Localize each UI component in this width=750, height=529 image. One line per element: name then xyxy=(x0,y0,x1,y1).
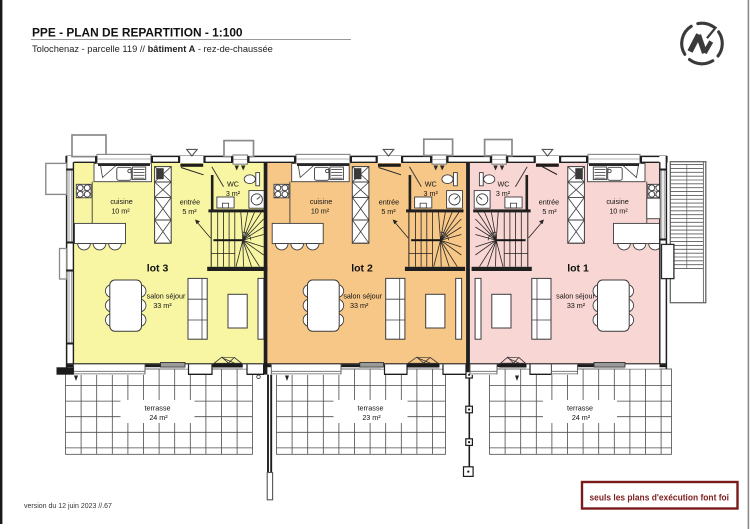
svg-text:10 m²: 10 m² xyxy=(609,207,628,216)
svg-text:24 m²: 24 m² xyxy=(149,413,168,422)
svg-text:3 m²: 3 m² xyxy=(496,189,511,198)
svg-text:version du 12 juin 2023 //.67: version du 12 juin 2023 //.67 xyxy=(24,503,112,510)
svg-text:lot 1: lot 1 xyxy=(567,263,589,275)
svg-text:terrasse: terrasse xyxy=(358,404,384,413)
svg-text:seuls les plans d'exécution fo: seuls les plans d'exécution font foi xyxy=(590,493,730,503)
svg-text:WC: WC xyxy=(425,180,437,189)
svg-text:10 m²: 10 m² xyxy=(111,207,130,216)
svg-text:cuisine: cuisine xyxy=(310,197,332,206)
svg-text:10 m²: 10 m² xyxy=(311,207,330,216)
svg-text:entrée: entrée xyxy=(379,198,399,207)
svg-text:3 m²: 3 m² xyxy=(226,189,241,198)
svg-text:entrée: entrée xyxy=(180,198,200,207)
svg-text:33 m²: 33 m² xyxy=(350,301,369,310)
svg-text:terrasse: terrasse xyxy=(145,404,171,413)
svg-text:5 m²: 5 m² xyxy=(542,207,557,216)
svg-text:salon séjour: salon séjour xyxy=(556,292,595,301)
svg-text:salon séjour: salon séjour xyxy=(147,292,186,301)
svg-text:WC: WC xyxy=(227,180,239,189)
svg-text:24 m²: 24 m² xyxy=(572,413,591,422)
svg-text:terrasse: terrasse xyxy=(567,404,593,413)
svg-text:Tolochenaz - parcelle 119 // b: Tolochenaz - parcelle 119 // bâtiment A … xyxy=(32,44,273,54)
svg-text:cuisine: cuisine xyxy=(606,197,628,206)
svg-text:entrée: entrée xyxy=(539,198,559,207)
svg-text:5 m²: 5 m² xyxy=(182,207,197,216)
svg-text:3 m²: 3 m² xyxy=(424,189,439,198)
svg-text:23 m²: 23 m² xyxy=(362,413,381,422)
svg-text:lot 2: lot 2 xyxy=(351,263,373,275)
svg-text:cuisine: cuisine xyxy=(110,197,132,206)
svg-text:salon séjour: salon séjour xyxy=(343,292,382,301)
svg-text:PPE - PLAN DE REPARTITION - 1:: PPE - PLAN DE REPARTITION - 1:100 xyxy=(32,26,243,40)
svg-text:5 m²: 5 m² xyxy=(381,207,396,216)
svg-text:33 m²: 33 m² xyxy=(153,301,172,310)
svg-text:lot 3: lot 3 xyxy=(147,263,169,275)
svg-text:33 m²: 33 m² xyxy=(567,301,586,310)
svg-text:WC: WC xyxy=(498,180,510,189)
